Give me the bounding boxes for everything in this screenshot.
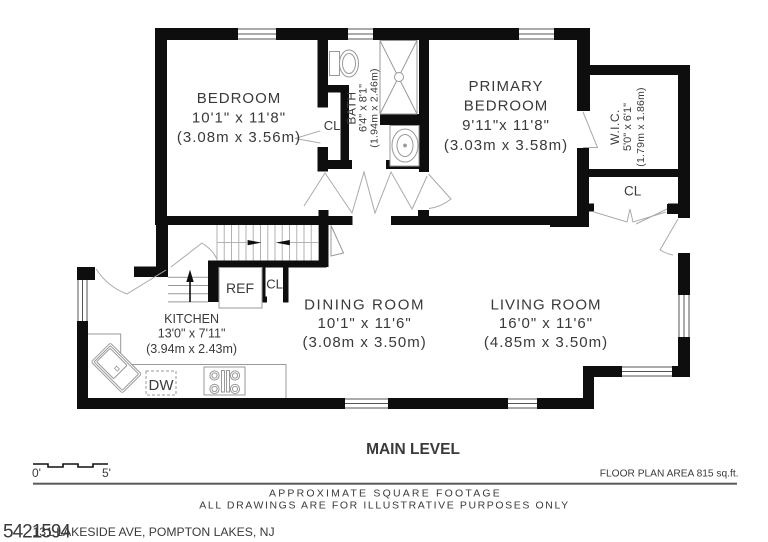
svg-text:(3.08m x 3.56m): (3.08m x 3.56m) <box>177 129 301 146</box>
svg-text:5421594: 5421594 <box>3 522 71 542</box>
svg-text:5': 5' <box>102 466 111 480</box>
svg-text:MAIN LEVEL: MAIN LEVEL <box>366 441 460 458</box>
svg-text:FLOOR PLAN AREA 815 sq.ft.: FLOOR PLAN AREA 815 sq.ft. <box>600 469 739 480</box>
svg-text:9'11"x 11'8": 9'11"x 11'8" <box>462 117 550 134</box>
svg-text:(3.08m x 3.50m): (3.08m x 3.50m) <box>302 334 426 351</box>
svg-text:BEDROOM: BEDROOM <box>197 90 282 107</box>
svg-text:(4.85m x 3.50m): (4.85m x 3.50m) <box>484 334 608 351</box>
svg-text:BATH: BATH <box>345 91 359 124</box>
svg-text:KITCHEN: KITCHEN <box>164 312 219 326</box>
svg-text:ALL DRAWINGS ARE FOR ILLUSTRAT: ALL DRAWINGS ARE FOR ILLUSTRATIVE PURPOS… <box>199 500 569 512</box>
svg-text:CL: CL <box>266 277 283 292</box>
svg-text:(3.94m x 2.43m): (3.94m x 2.43m) <box>146 342 237 356</box>
svg-text:LIVING ROOM: LIVING ROOM <box>490 297 601 314</box>
svg-text:REF: REF <box>226 280 254 296</box>
svg-text:0': 0' <box>32 466 41 480</box>
svg-text:(1.94m x 2.46m): (1.94m x 2.46m) <box>369 68 381 147</box>
svg-text:5'0" x 6'1": 5'0" x 6'1" <box>622 103 634 151</box>
svg-text:APPROXIMATE SQUARE FOOTAGE: APPROXIMATE SQUARE FOOTAGE <box>269 488 502 500</box>
svg-text:16'0" x 11'6": 16'0" x 11'6" <box>499 315 593 332</box>
svg-text:CL: CL <box>324 118 341 133</box>
svg-text:(1.79m x 1.86m): (1.79m x 1.86m) <box>635 87 647 166</box>
svg-text:10'1" x 11'6": 10'1" x 11'6" <box>318 315 412 332</box>
svg-text:DW: DW <box>149 377 175 394</box>
svg-text:(3.03m x 3.58m): (3.03m x 3.58m) <box>444 137 568 154</box>
svg-text:DINING ROOM: DINING ROOM <box>304 297 425 314</box>
svg-text:W.I.C.: W.I.C. <box>608 109 622 145</box>
svg-text:BEDROOM: BEDROOM <box>464 98 549 115</box>
svg-text:PRIMARY: PRIMARY <box>468 78 543 95</box>
svg-text:CL: CL <box>624 184 642 199</box>
svg-text:13'0" x 7'11": 13'0" x 7'11" <box>158 327 226 341</box>
svg-text:10'1" x 11'8": 10'1" x 11'8" <box>192 110 286 127</box>
